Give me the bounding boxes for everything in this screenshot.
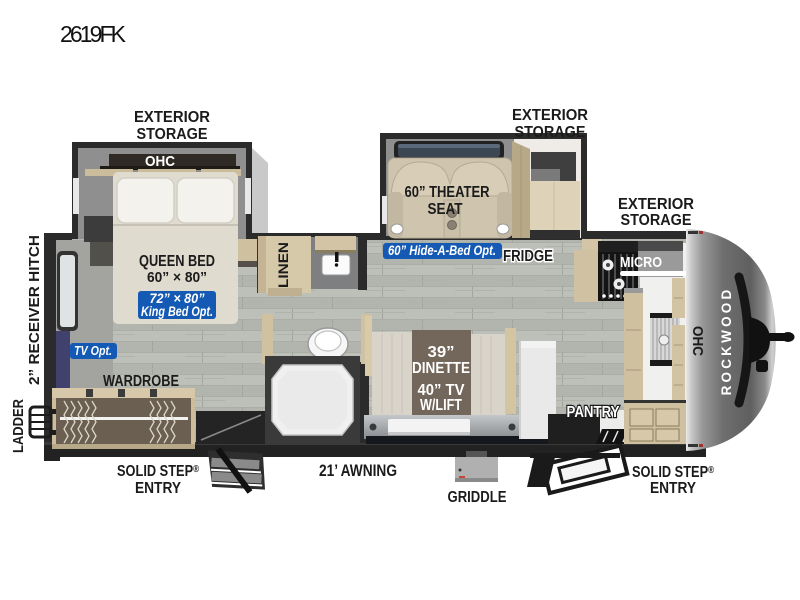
svg-text:EXTERIOR: EXTERIOR — [134, 109, 210, 126]
svg-text:OHC: OHC — [689, 326, 706, 356]
svg-text:SEAT: SEAT — [428, 201, 463, 218]
svg-text:39”: 39” — [428, 344, 455, 361]
svg-text:EXTERIOR: EXTERIOR — [512, 107, 588, 124]
svg-text:2” RECEIVER HITCH: 2” RECEIVER HITCH — [26, 235, 43, 385]
svg-text:WARDROBE: WARDROBE — [103, 373, 179, 390]
svg-text:LADDER: LADDER — [10, 399, 27, 453]
svg-text:TV Opt.: TV Opt. — [74, 343, 112, 358]
svg-text:60” Hide-A-Bed Opt.: 60” Hide-A-Bed Opt. — [388, 243, 496, 258]
svg-text:STORAGE: STORAGE — [515, 124, 586, 141]
svg-text:FRIDGE: FRIDGE — [503, 248, 553, 265]
svg-text:LINEN: LINEN — [276, 242, 291, 288]
svg-text:60” × 80”: 60” × 80” — [147, 269, 207, 286]
svg-text:STORAGE: STORAGE — [137, 126, 208, 143]
svg-text:2619FK: 2619FK — [60, 21, 127, 47]
svg-text:OHC: OHC — [145, 153, 175, 170]
svg-text:W/LIFT: W/LIFT — [420, 397, 462, 414]
svg-text:21’ AWNING: 21’ AWNING — [319, 462, 397, 480]
svg-text:STORAGE: STORAGE — [621, 212, 692, 229]
svg-text:MICRO: MICRO — [620, 254, 662, 271]
svg-text:QUEEN BED: QUEEN BED — [139, 253, 215, 270]
svg-text:GRIDDLE: GRIDDLE — [448, 489, 507, 506]
svg-text:ENTRY: ENTRY — [650, 480, 696, 497]
svg-text:PANTRY: PANTRY — [567, 404, 621, 421]
svg-text:EXTERIOR: EXTERIOR — [618, 196, 694, 213]
svg-text:King Bed Opt.: King Bed Opt. — [141, 304, 213, 319]
svg-text:SOLID STEP®: SOLID STEP® — [632, 464, 715, 481]
svg-text:DINETTE: DINETTE — [412, 360, 470, 377]
svg-text:SOLID STEP®: SOLID STEP® — [117, 463, 200, 480]
svg-text:ENTRY: ENTRY — [135, 480, 181, 497]
svg-text:ROCKWOOD: ROCKWOOD — [719, 287, 734, 396]
svg-text:60” THEATER: 60” THEATER — [405, 184, 490, 201]
